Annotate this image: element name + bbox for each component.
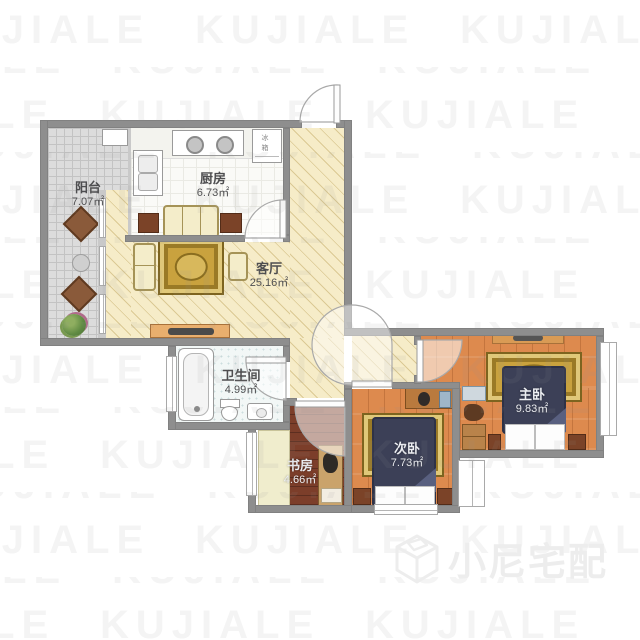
brand-watermark: 小尼宅配 [394,531,608,586]
living-rug [158,238,224,295]
living-floor-3 [290,128,344,338]
balcony-partition-window-1 [99,198,106,238]
bathroom-sink [247,403,273,420]
hall-floor [290,338,344,398]
kitchen-stove [172,130,244,156]
entrance-door-leaf [334,85,340,123]
balcony-plant [62,314,86,336]
master-wardrobe [462,424,486,450]
balcony-partition-window-3 [99,294,106,334]
master-small-window [458,460,485,507]
side-table-left [138,213,159,233]
sofa-left [133,243,156,291]
balcony-table [72,254,90,272]
master-nightstand-right [568,434,586,450]
kitchen-sink [133,150,163,196]
tv-cabinet [150,324,230,338]
sofa-main [163,205,219,238]
cube-logo-icon [394,534,440,584]
armchair-right [228,252,248,281]
bedroom2-nightstand-left [353,488,371,505]
corridor-floor [352,336,420,383]
bedroom2-desk [405,388,455,409]
bedroom2-window [374,504,438,515]
study-window [246,432,257,496]
master-mirror-dresser [462,386,486,401]
balcony-sink [102,129,128,146]
balcony-partition-window-2 [99,246,106,286]
master-stool [464,404,484,421]
side-table-right [220,213,242,233]
master-nightstand-left [488,434,501,450]
entrance-door-arc [300,85,337,122]
brand-text: 小尼宅配 [448,531,608,586]
kitchen-fridge: 冰箱 [252,129,282,163]
toilet [218,399,240,421]
study-closet [258,430,290,507]
master-bay-window [600,342,617,436]
master-pillow-left [505,424,535,450]
floor-plan-canvas: 冰箱 [0,0,640,640]
fridge-label: 冰箱 [262,133,275,153]
master-pillow-right [535,424,565,450]
bathroom-window [166,356,177,412]
bathtub [178,348,214,421]
study-bed [318,445,343,507]
